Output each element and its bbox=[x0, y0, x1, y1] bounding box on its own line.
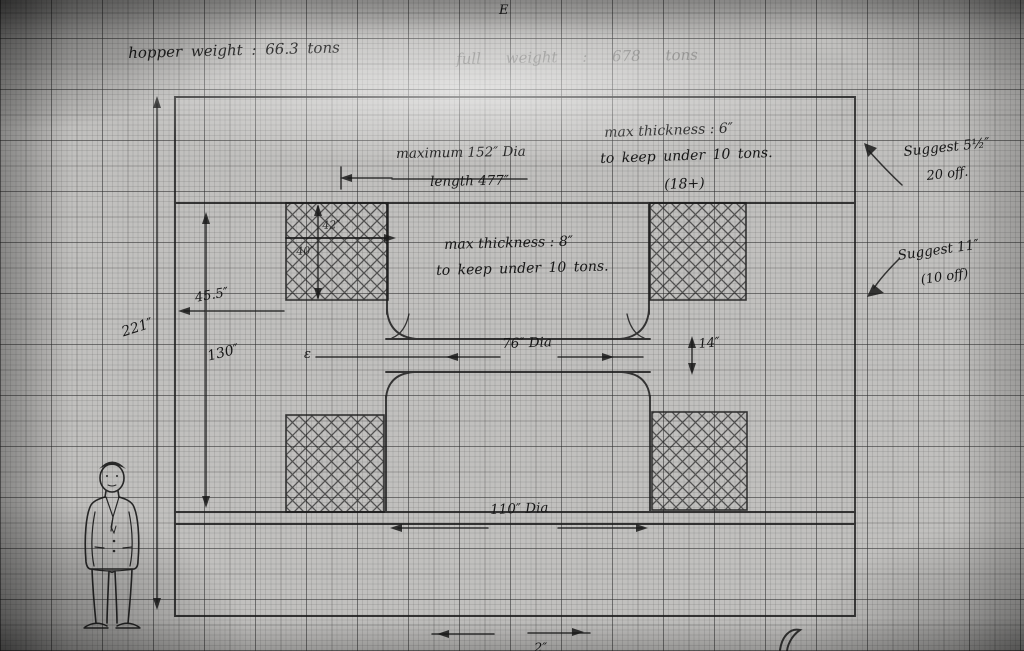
dimension-lines bbox=[157, 104, 902, 651]
upper-wall-note-line3: (18+) bbox=[664, 177, 705, 192]
dim-base-diameter: 110″ Dia bbox=[490, 502, 549, 518]
lower-right-hatch bbox=[652, 412, 747, 510]
bore-note-line2: length 477″ bbox=[430, 175, 509, 190]
lower-left-hatch bbox=[286, 415, 384, 512]
mould-outline bbox=[175, 97, 855, 616]
dim-waist-diameter: 76″ Dia bbox=[502, 336, 552, 351]
total-weight-note: full weight : 678 tons bbox=[456, 48, 698, 67]
dim-waist-band-height: 14″ bbox=[698, 336, 720, 351]
centerline-mark: ε bbox=[304, 348, 311, 361]
arrowheads bbox=[153, 96, 884, 638]
sheet-mark: E bbox=[499, 4, 509, 17]
scale-figure-man bbox=[84, 462, 140, 629]
dim-bottom-partial: 2″ bbox=[534, 642, 547, 651]
bore-note-line1: maximum 152″ Dia bbox=[396, 146, 526, 162]
upper-right-hatch bbox=[650, 203, 746, 300]
dim-hatch-lower: 40″ bbox=[296, 245, 315, 257]
graph-paper-sheet: hopper weight : 66.3 tons full weight : … bbox=[0, 0, 1024, 651]
dim-hatch-upper: 42″ bbox=[322, 219, 341, 231]
mid-wall-note-line1: max thickness : 8″ bbox=[444, 235, 573, 252]
